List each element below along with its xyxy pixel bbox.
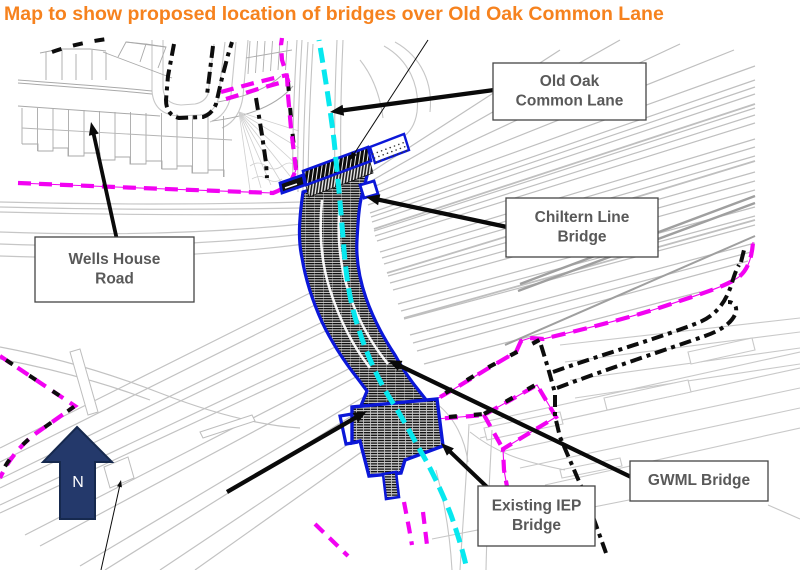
svg-text:Bridge: Bridge: [557, 229, 606, 246]
svg-text:Road: Road: [95, 271, 134, 288]
svg-text:N: N: [72, 474, 84, 491]
svg-text:Old Oak: Old Oak: [540, 73, 600, 90]
svg-text:Existing IEP: Existing IEP: [492, 498, 582, 515]
svg-text:Wells House: Wells House: [69, 251, 161, 268]
svg-text:Common Lane: Common Lane: [516, 93, 624, 110]
svg-text:Bridge: Bridge: [512, 517, 561, 534]
svg-text:GWML Bridge: GWML Bridge: [648, 472, 751, 489]
svg-text:Chiltern Line: Chiltern Line: [535, 209, 630, 226]
